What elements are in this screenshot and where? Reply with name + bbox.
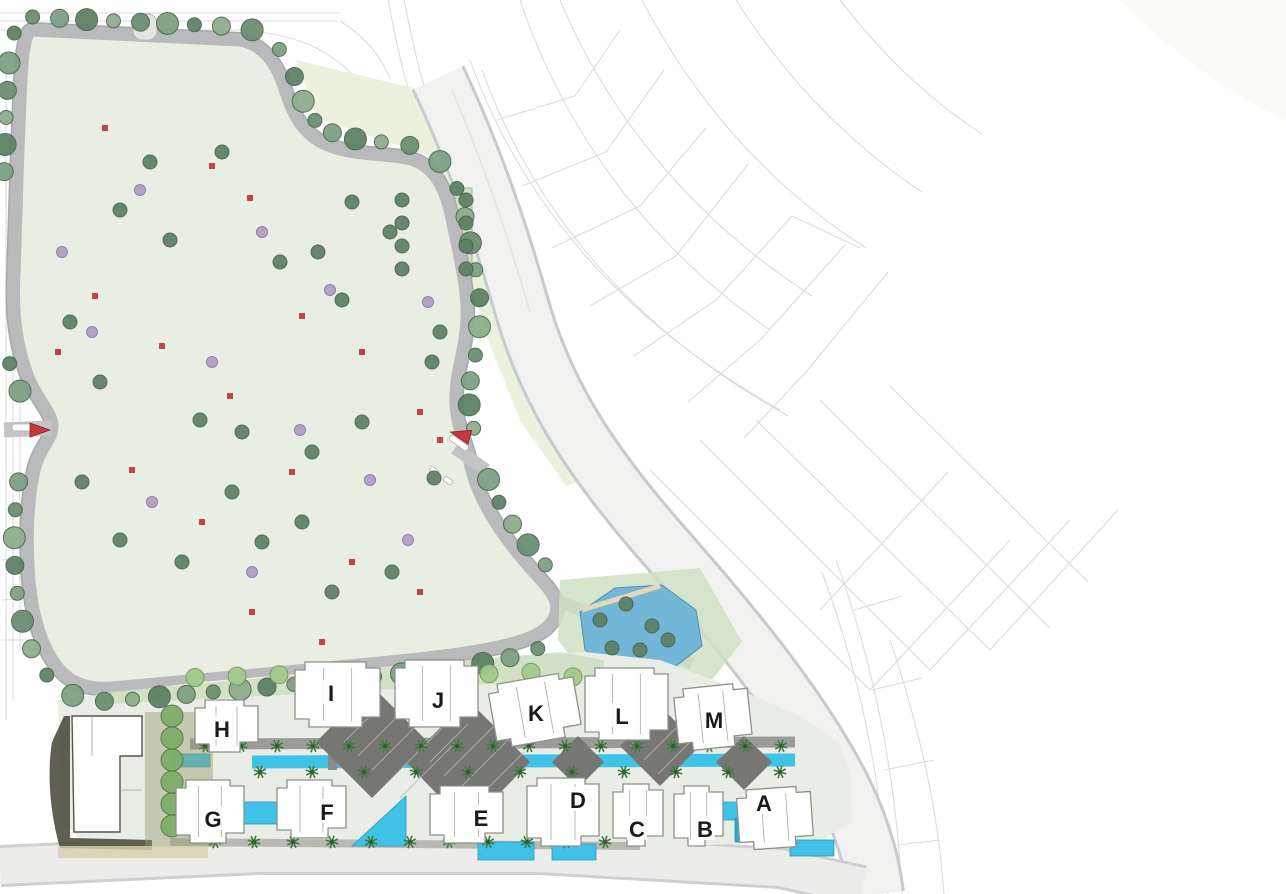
svg-text:F: F: [320, 800, 333, 825]
svg-text:H: H: [214, 717, 230, 742]
building-label-g: G: [203, 806, 223, 832]
svg-text:D: D: [570, 788, 586, 813]
svg-text:I: I: [328, 681, 334, 706]
building-label-e: E: [471, 805, 491, 831]
building-label-m: M: [704, 707, 724, 733]
svg-text:G: G: [204, 807, 221, 832]
svg-text:K: K: [528, 701, 544, 726]
building-label-c: C: [627, 816, 647, 842]
master-plan-canvas: HIJKLMGFEDCBA: [0, 0, 1286, 894]
building-label-j: J: [428, 687, 448, 713]
svg-text:B: B: [697, 817, 713, 842]
building-label-a: A: [754, 790, 774, 816]
svg-text:L: L: [615, 704, 628, 729]
svg-text:J: J: [432, 688, 444, 713]
site-plan-map: HIJKLMGFEDCBA: [0, 0, 1286, 894]
building-footprint: [527, 778, 599, 846]
building-label-i: I: [321, 680, 341, 706]
svg-text:E: E: [474, 806, 489, 831]
building-label-b: B: [695, 816, 715, 842]
svg-text:A: A: [756, 791, 772, 816]
building-label-k: K: [526, 700, 546, 726]
south-road: [0, 854, 862, 886]
svg-text:M: M: [705, 708, 723, 733]
building-label-d: D: [568, 787, 588, 813]
building-label-l: L: [612, 703, 632, 729]
building-label-f: F: [317, 799, 337, 825]
building-label-h: H: [212, 716, 232, 742]
svg-text:C: C: [629, 817, 645, 842]
